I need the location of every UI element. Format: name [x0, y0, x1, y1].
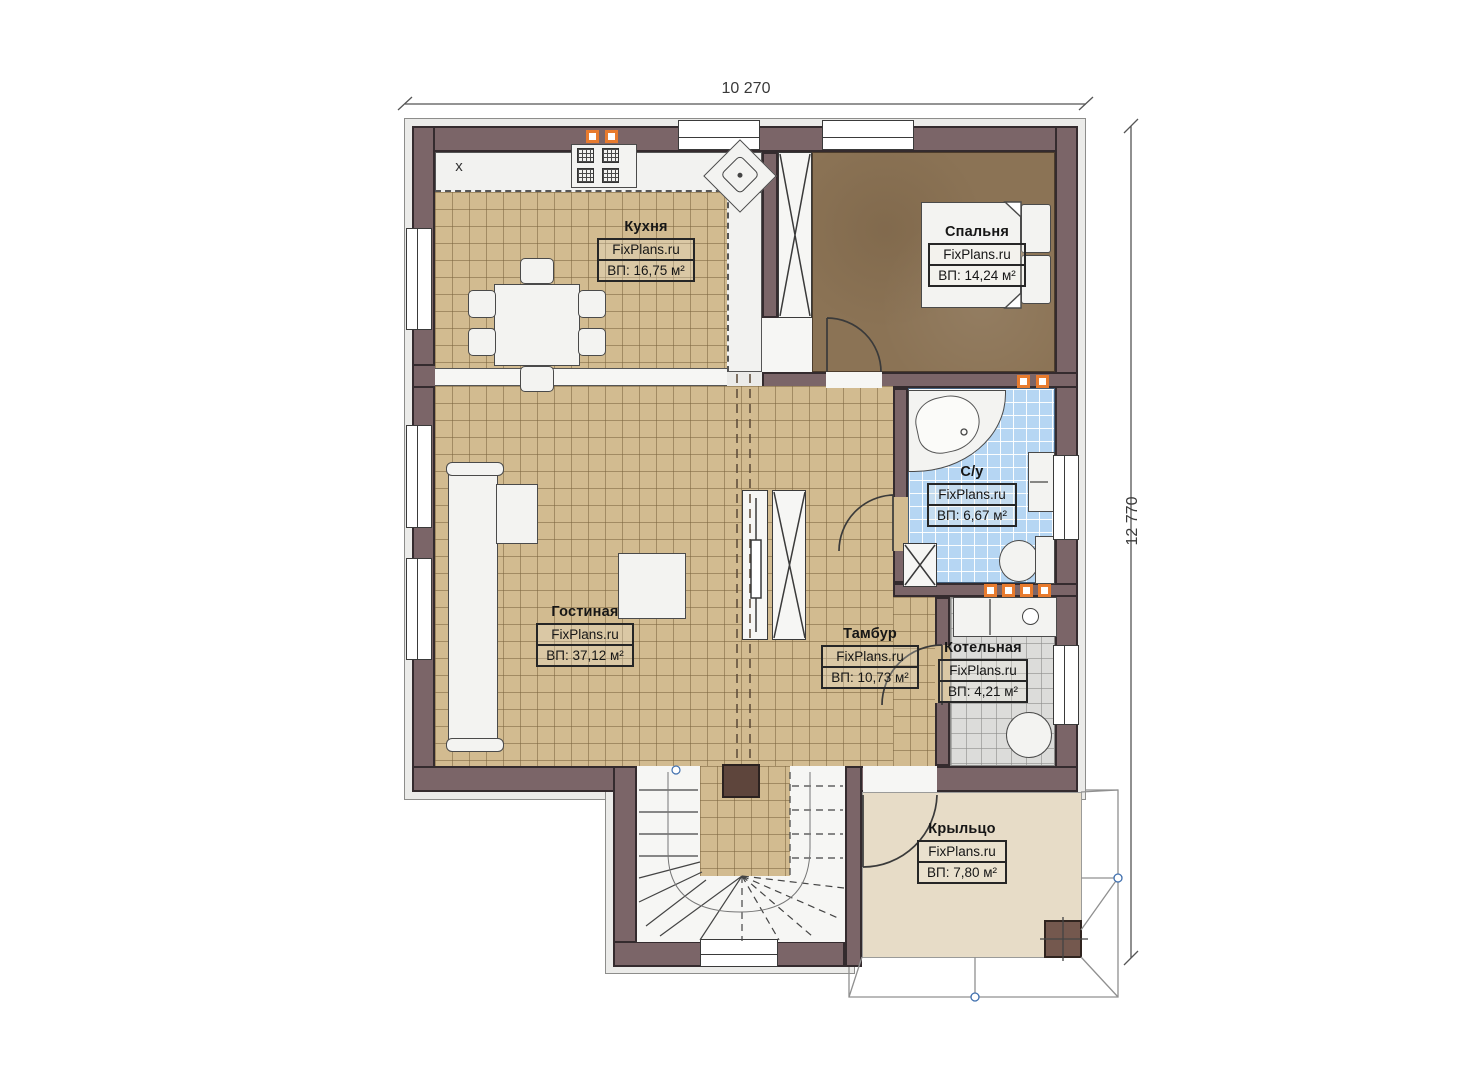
stove-burner: [602, 148, 619, 163]
heat-indicator: [1038, 584, 1051, 597]
dining-table: [494, 284, 580, 366]
wall-stairs-left: [613, 766, 637, 967]
window-top-corridor: [678, 120, 760, 150]
front-door-opening: [863, 766, 937, 792]
room-label-porch: Крыльцо FixPlans.ru ВП: 7,80 м²: [897, 821, 1027, 884]
heat-indicator: [586, 130, 599, 143]
watermark-fixplans: FixPlans.ru: [823, 647, 917, 666]
room-area: ВП: 16,75 м²: [599, 259, 693, 280]
room-label-boiler: Котельная FixPlans.ru ВП: 4,21 м²: [918, 640, 1048, 703]
room-info-box: FixPlans.ru ВП: 4,21 м²: [938, 659, 1028, 703]
heat-indicator: [1017, 375, 1030, 388]
dimension-right-label: 12 770: [1124, 481, 1142, 561]
chimney-pocket-left: [742, 490, 768, 640]
chair: [578, 328, 606, 356]
room-name: С/у: [907, 464, 1037, 480]
chair: [468, 290, 496, 318]
room-area: ВП: 10,73 м²: [823, 666, 917, 687]
boiler-tank: [1006, 712, 1052, 758]
window-bedroom-top: [822, 120, 914, 150]
chair: [468, 328, 496, 356]
room-name: Крыльцо: [897, 821, 1027, 837]
chair: [578, 290, 606, 318]
room-info-box: FixPlans.ru ВП: 6,67 м²: [927, 483, 1017, 527]
room-info-box: FixPlans.ru ВП: 16,75 м²: [597, 238, 695, 282]
window-bathroom-right: [1053, 455, 1079, 540]
vent-shaft-bath: [903, 543, 937, 587]
room-label-tambour: Тамбур FixPlans.ru ВП: 10,73 м²: [805, 626, 935, 689]
room-label-bedroom: Спальня FixPlans.ru ВП: 14,24 м²: [912, 224, 1042, 287]
vent-shaft-top: [778, 152, 812, 318]
room-label-kitchen: Кухня FixPlans.ru ВП: 16,75 м²: [581, 219, 711, 282]
chimney-pocket-right: [772, 490, 806, 640]
boiler-counter: [953, 597, 1057, 637]
room-info-box: FixPlans.ru ВП: 37,12 м²: [536, 623, 634, 667]
room-info-box: FixPlans.ru ВП: 14,24 м²: [928, 243, 1026, 287]
room-name: Спальня: [912, 224, 1042, 240]
room-info-box: FixPlans.ru ВП: 7,80 м²: [917, 840, 1007, 884]
toilet-bowl: [999, 540, 1039, 582]
window-kitchen-left: [406, 228, 432, 330]
room-name: Кухня: [581, 219, 711, 235]
sofa-chaise: [496, 484, 538, 544]
stove-burner: [577, 168, 594, 183]
watermark-fixplans: FixPlans.ru: [919, 842, 1005, 861]
watermark-fixplans: FixPlans.ru: [538, 625, 632, 644]
heat-indicator: [1036, 375, 1049, 388]
room-area: ВП: 37,12 м²: [538, 644, 632, 665]
bedroom-door-opening: [826, 372, 882, 388]
room-name: Гостиная: [520, 604, 650, 620]
watermark-fixplans: FixPlans.ru: [930, 245, 1024, 264]
chair: [520, 258, 554, 284]
stove-burner: [577, 148, 594, 163]
kitchen-living-divider: [435, 368, 727, 386]
window-living-left-1: [406, 425, 432, 528]
room-name: Котельная: [918, 640, 1048, 656]
window-living-left-2: [406, 558, 432, 660]
room-area: ВП: 4,21 м²: [940, 680, 1026, 701]
window-boiler-right: [1053, 645, 1079, 725]
toilet-tank: [1035, 536, 1055, 584]
corridor-opening: [762, 318, 814, 372]
watermark-fixplans: FixPlans.ru: [929, 485, 1015, 504]
sofa-back: [448, 470, 498, 742]
heat-indicator: [1002, 584, 1015, 597]
wall-bottom-left: [412, 766, 637, 792]
room-area: ВП: 7,80 м²: [919, 861, 1005, 882]
window-stairs-bottom: [700, 939, 778, 967]
room-label-living: Гостиная FixPlans.ru ВП: 37,12 м²: [520, 604, 650, 667]
wall-stairs-right: [845, 766, 862, 967]
sofa-armrest: [446, 738, 504, 752]
room-info-box: FixPlans.ru ВП: 10,73 м²: [821, 645, 919, 689]
room-area: ВП: 6,67 м²: [929, 504, 1015, 525]
heat-indicator: [984, 584, 997, 597]
heat-indicator: [605, 130, 618, 143]
dimension-top-label: 10 270: [696, 80, 796, 98]
heat-indicator: [1020, 584, 1033, 597]
room-area: ВП: 14,24 м²: [930, 264, 1024, 285]
kitchen-x-marker: x: [446, 158, 472, 175]
room-name: Тамбур: [805, 626, 935, 642]
boiler-sink: [1022, 608, 1039, 625]
stove-burner: [602, 168, 619, 183]
watermark-fixplans: FixPlans.ru: [599, 240, 693, 259]
sofa-armrest: [446, 462, 504, 476]
room-label-bathroom: С/у FixPlans.ru ВП: 6,67 м²: [907, 464, 1037, 527]
watermark-fixplans: FixPlans.ru: [940, 661, 1026, 680]
floor-plan-canvas: x: [0, 0, 1473, 1080]
porch-column: [1044, 920, 1082, 958]
kitchen-counter-right: [727, 192, 762, 372]
chair: [520, 366, 554, 392]
chimney-flue: [722, 764, 760, 798]
